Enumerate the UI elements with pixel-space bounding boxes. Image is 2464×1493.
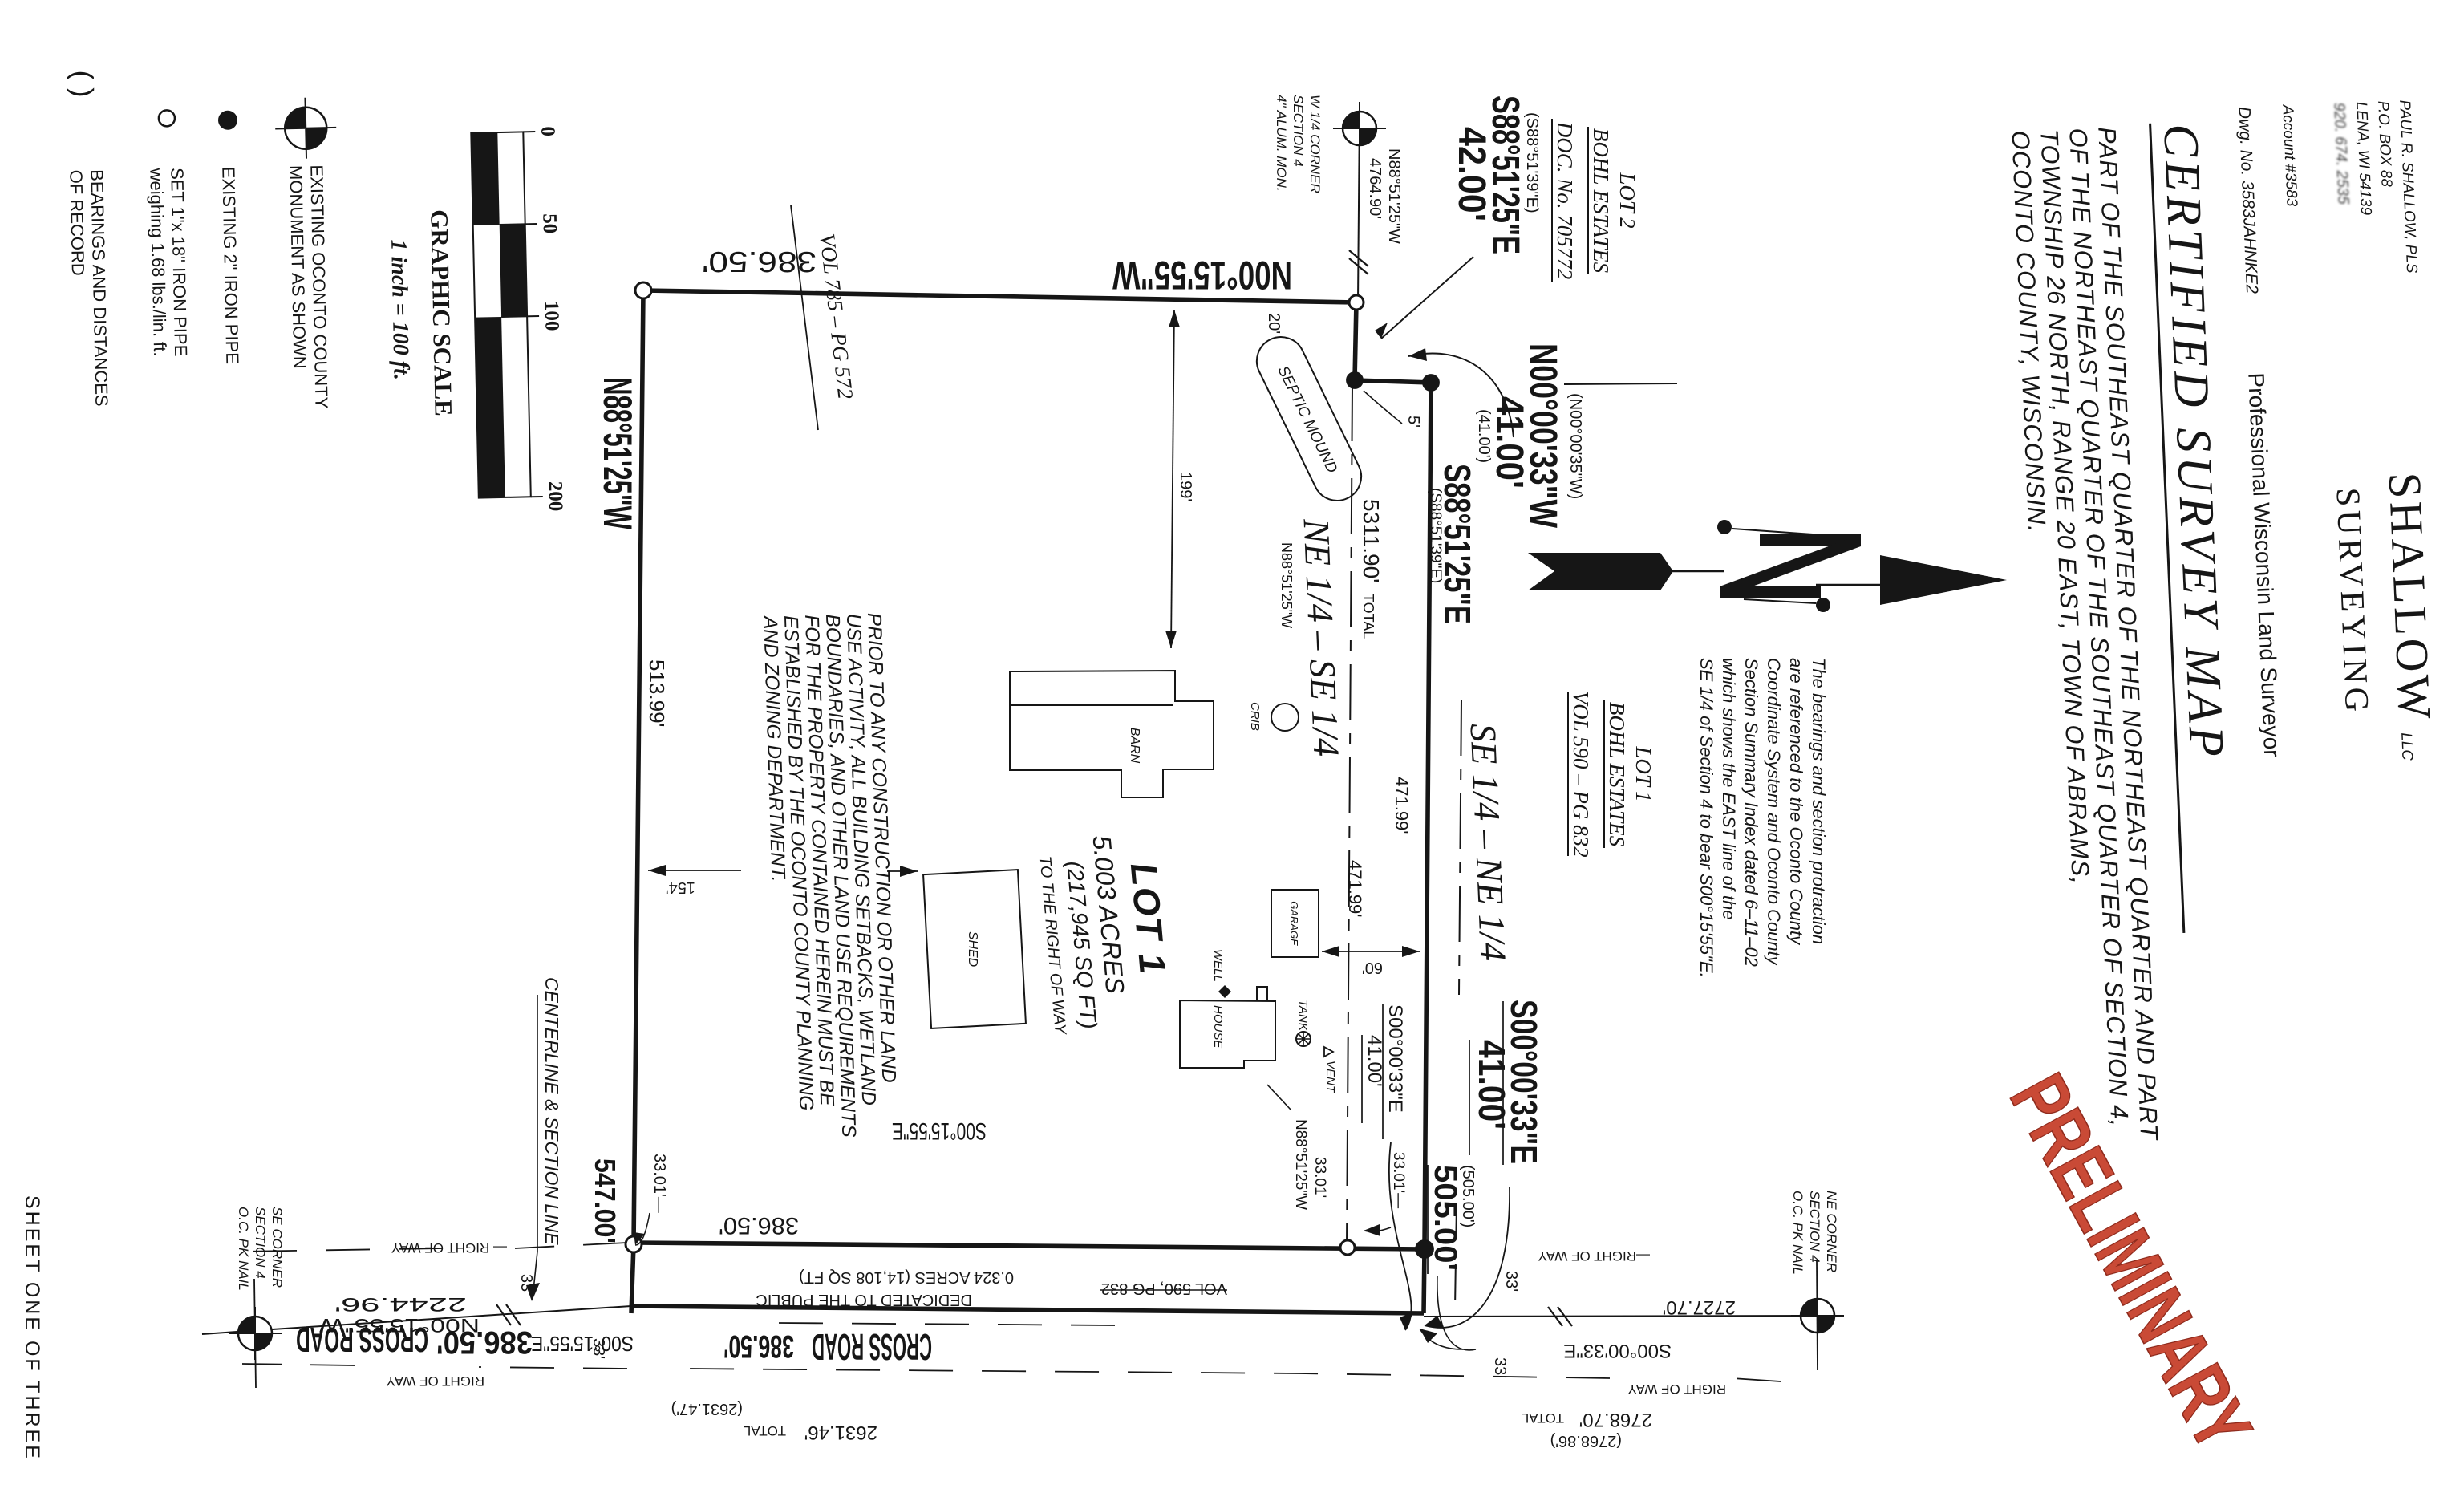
svg-text:S00°00'33"E: S00°00'33"E bbox=[1563, 1340, 1672, 1361]
svg-text:VOL 590, PG 832: VOL 590, PG 832 bbox=[1101, 1280, 1227, 1297]
svg-text:471.99': 471.99' bbox=[1392, 777, 1412, 834]
svg-text:LOT 1: LOT 1 bbox=[1631, 745, 1655, 801]
svg-text:LOT 1: LOT 1 bbox=[1123, 861, 1174, 976]
svg-text:0: 0 bbox=[537, 126, 558, 136]
svg-text:which shows the EAST line of t: which shows the EAST line of the bbox=[1719, 658, 1739, 920]
svg-text:DOC. No. 705772: DOC. No. 705772 bbox=[1553, 121, 1577, 280]
svg-text:471.99': 471.99' bbox=[1345, 860, 1365, 918]
svg-text:EXISTING 2" IRON PIPE: EXISTING 2" IRON PIPE bbox=[218, 166, 242, 364]
svg-text:CROSS ROAD: CROSS ROAD bbox=[812, 1326, 932, 1368]
svg-text:GARAGE: GARAGE bbox=[1288, 901, 1300, 946]
svg-text:20': 20' bbox=[1265, 313, 1283, 334]
svg-text:WELL: WELL bbox=[1211, 949, 1225, 982]
svg-text:EXISTING OCONTO COUNTY: EXISTING OCONTO COUNTY bbox=[306, 164, 331, 409]
svg-text:TANK: TANK bbox=[1296, 1000, 1310, 1032]
svg-text:386.50': 386.50' bbox=[723, 1329, 794, 1364]
svg-text:920. 674. 2535: 920. 674. 2535 bbox=[2330, 103, 2351, 205]
svg-text:CERTIFIED SURVEY MAP: CERTIFIED SURVEY MAP bbox=[2153, 123, 2234, 762]
svg-text:RIGHT OF WAY: RIGHT OF WAY bbox=[1628, 1381, 1726, 1397]
svg-text:(2631.47'): (2631.47') bbox=[671, 1400, 743, 1418]
svg-text:N88°51'25"W: N88°51'25"W bbox=[1279, 542, 1295, 628]
svg-text:RIGHT OF WAY: RIGHT OF WAY bbox=[387, 1373, 484, 1389]
svg-text:50: 50 bbox=[538, 213, 561, 234]
svg-text:Account #3583: Account #3583 bbox=[2279, 103, 2300, 207]
svg-text:HOUSE: HOUSE bbox=[1211, 1005, 1225, 1049]
svg-text:NE 1/4 – SE 1/4: NE 1/4 – SE 1/4 bbox=[1296, 517, 1347, 757]
svg-text:2631.46': 2631.46' bbox=[804, 1422, 877, 1443]
svg-text:SET 1"x 18" IRON PIPE: SET 1"x 18" IRON PIPE bbox=[167, 168, 191, 357]
svg-text:N88°51'25"W: N88°51'25"W bbox=[1385, 148, 1403, 244]
svg-text:200: 200 bbox=[544, 481, 566, 512]
svg-text:TOTAL: TOTAL bbox=[1360, 594, 1376, 639]
svg-text:4764.90': 4764.90' bbox=[1366, 158, 1384, 219]
svg-text:(2768.86'): (2768.86') bbox=[1550, 1432, 1622, 1450]
svg-text:BARN: BARN bbox=[1128, 728, 1141, 764]
svg-text:VENT: VENT bbox=[1323, 1061, 1337, 1094]
svg-text:SHALLOW: SHALLOW bbox=[2379, 472, 2442, 724]
svg-text:W 1/4 CORNER: W 1/4 CORNER bbox=[1307, 95, 1323, 193]
svg-text:SECTION 4: SECTION 4 bbox=[1807, 1191, 1822, 1263]
svg-text:N88°51'25"W: N88°51'25"W bbox=[595, 377, 640, 529]
svg-text:33': 33' bbox=[517, 1274, 535, 1295]
svg-text:O.C. PK NAIL: O.C. PK NAIL bbox=[1790, 1191, 1805, 1275]
svg-text:N00°15'55"W: N00°15'55"W bbox=[319, 1314, 480, 1336]
svg-text:O.C. PK NAIL: O.C. PK NAIL bbox=[236, 1207, 251, 1291]
svg-text:505.00': 505.00' bbox=[1428, 1165, 1463, 1271]
svg-text:100: 100 bbox=[541, 301, 563, 331]
svg-text:Professional Wisconsin Land Su: Professional Wisconsin Land Surveyor bbox=[2243, 372, 2284, 757]
svg-text:CENTERLINE & SECTION LINE: CENTERLINE & SECTION LINE bbox=[541, 977, 562, 1245]
svg-text:33.01': 33.01' bbox=[1311, 1157, 1328, 1198]
svg-text:TOTAL: TOTAL bbox=[744, 1423, 786, 1438]
svg-text:— RIGHT OF WAY: — RIGHT OF WAY bbox=[391, 1240, 507, 1256]
svg-text:( ): ( ) bbox=[67, 70, 100, 98]
svg-text:MONUMENT AS SHOWN: MONUMENT AS SHOWN bbox=[286, 165, 310, 369]
svg-text:2244.96': 2244.96' bbox=[334, 1293, 467, 1315]
svg-text:SE CORNER: SE CORNER bbox=[269, 1207, 285, 1288]
svg-text:SEPTIC MOUND: SEPTIC MOUND bbox=[1274, 363, 1340, 476]
svg-text:SECTION 4: SECTION 4 bbox=[253, 1207, 268, 1279]
svg-text:386.50': 386.50' bbox=[719, 1212, 799, 1239]
svg-text:TOTAL: TOTAL bbox=[1522, 1410, 1564, 1426]
svg-text:SURVEYING: SURVEYING bbox=[2328, 487, 2375, 716]
svg-text:Section Summary Index dated 6–: Section Summary Index dated 6–11–02 bbox=[1741, 658, 1761, 967]
svg-text:LLC: LLC bbox=[2397, 732, 2415, 761]
svg-text:NE CORNER: NE CORNER bbox=[1824, 1191, 1839, 1272]
svg-text:GRAPHIC SCALE: GRAPHIC SCALE bbox=[425, 209, 457, 416]
svg-text:SHED: SHED bbox=[966, 931, 979, 968]
svg-text:BEARINGS AND DISTANCES: BEARINGS AND DISTANCES bbox=[87, 169, 111, 407]
svg-text:0.324 ACRES (14,108 SQ FT): 0.324 ACRES (14,108 SQ FT) bbox=[799, 1268, 1014, 1286]
svg-text:P.O. BOX 88: P.O. BOX 88 bbox=[2374, 100, 2394, 188]
svg-text:41.00': 41.00' bbox=[1471, 1040, 1513, 1130]
svg-text:33': 33' bbox=[1491, 1357, 1509, 1378]
svg-text:SE 1/4 of Section 4 to bear S0: SE 1/4 of Section 4 to bear S00°15'55"E. bbox=[1696, 658, 1716, 978]
svg-text:S00°00'33"E: S00°00'33"E bbox=[1384, 1004, 1406, 1113]
svg-text:5': 5' bbox=[1404, 416, 1422, 428]
svg-text:PAUL R. SHALLOW, PLS: PAUL R. SHALLOW, PLS bbox=[2396, 99, 2420, 274]
svg-text:VOL 785 – PG 572: VOL 785 – PG 572 bbox=[815, 233, 857, 400]
svg-text:33.01'—: 33.01'— bbox=[1390, 1152, 1407, 1208]
svg-text:Dwg. No. 3583JAHNKE2: Dwg. No. 3583JAHNKE2 bbox=[2235, 106, 2261, 294]
svg-text:DEDICATED TO THE PUBLIC: DEDICATED TO THE PUBLIC bbox=[756, 1291, 972, 1308]
svg-text:VOL 590 – PG 832: VOL 590 – PG 832 bbox=[1569, 691, 1593, 857]
svg-text:(S88°51'39"E): (S88°51'39"E) bbox=[1427, 488, 1444, 583]
svg-text:5311.90': 5311.90' bbox=[1359, 499, 1384, 582]
svg-text:199': 199' bbox=[1177, 472, 1194, 501]
svg-text:N00°15'55"W: N00°15'55"W bbox=[1112, 253, 1292, 298]
svg-text:33': 33' bbox=[590, 1338, 607, 1359]
svg-text:are referenced to the Oconto C: are referenced to the Oconto County bbox=[1786, 658, 1806, 946]
svg-text:1 inch = 100 ft.: 1 inch = 100 ft. bbox=[386, 239, 414, 380]
svg-text:LOT 2: LOT 2 bbox=[1615, 172, 1639, 228]
svg-text:S00°15'55"E: S00°15'55"E bbox=[531, 1332, 634, 1356]
svg-text:33.01'—: 33.01'— bbox=[650, 1154, 668, 1213]
svg-text:4" ALUM. MON.: 4" ALUM. MON. bbox=[1274, 95, 1289, 192]
svg-text:LENA, WI 54139: LENA, WI 54139 bbox=[2353, 101, 2374, 216]
svg-text:OF RECORD: OF RECORD bbox=[66, 169, 88, 275]
svg-text:513.99': 513.99' bbox=[645, 659, 669, 728]
svg-text:BOHL ESTATES: BOHL ESTATES bbox=[1605, 702, 1629, 847]
svg-text:Coordinate System and Oconto C: Coordinate System and Oconto County bbox=[1764, 658, 1784, 967]
svg-text:weighing 1.68 lbs./lin. ft.: weighing 1.68 lbs./lin. ft. bbox=[146, 167, 170, 356]
svg-text:42.00': 42.00' bbox=[1450, 127, 1493, 221]
svg-text:BOHL ESTATES: BOHL ESTATES bbox=[1589, 128, 1613, 274]
svg-text:N88°51'25"W: N88°51'25"W bbox=[1292, 1119, 1309, 1210]
svg-text:SE 1/4 – NE 1/4: SE 1/4 – NE 1/4 bbox=[1463, 723, 1514, 962]
svg-text:2768.70': 2768.70' bbox=[1579, 1409, 1652, 1430]
svg-text:33': 33' bbox=[1502, 1271, 1520, 1292]
svg-text:The bearings and section protr: The bearings and section protraction bbox=[1809, 658, 1829, 944]
svg-text:154': 154' bbox=[666, 878, 695, 896]
svg-text:547.00': 547.00' bbox=[589, 1158, 622, 1243]
svg-text:(N00°00'35"W): (N00°00'35"W) bbox=[1566, 393, 1584, 499]
svg-text:—RIGHT OF WAY: —RIGHT OF WAY bbox=[1538, 1248, 1650, 1264]
svg-text:(41.00'): (41.00') bbox=[1475, 409, 1493, 463]
svg-text:CRIB: CRIB bbox=[1248, 702, 1262, 731]
svg-text:SECTION 4: SECTION 4 bbox=[1291, 95, 1306, 167]
svg-text:SHEET ONE OF THREE: SHEET ONE OF THREE bbox=[21, 1195, 43, 1461]
svg-text:2727.70': 2727.70' bbox=[1663, 1296, 1736, 1318]
svg-text:S00°15'55"E: S00°15'55"E bbox=[892, 1118, 987, 1144]
svg-text:41.00': 41.00' bbox=[1364, 1035, 1385, 1087]
svg-text:60': 60' bbox=[1362, 959, 1383, 976]
